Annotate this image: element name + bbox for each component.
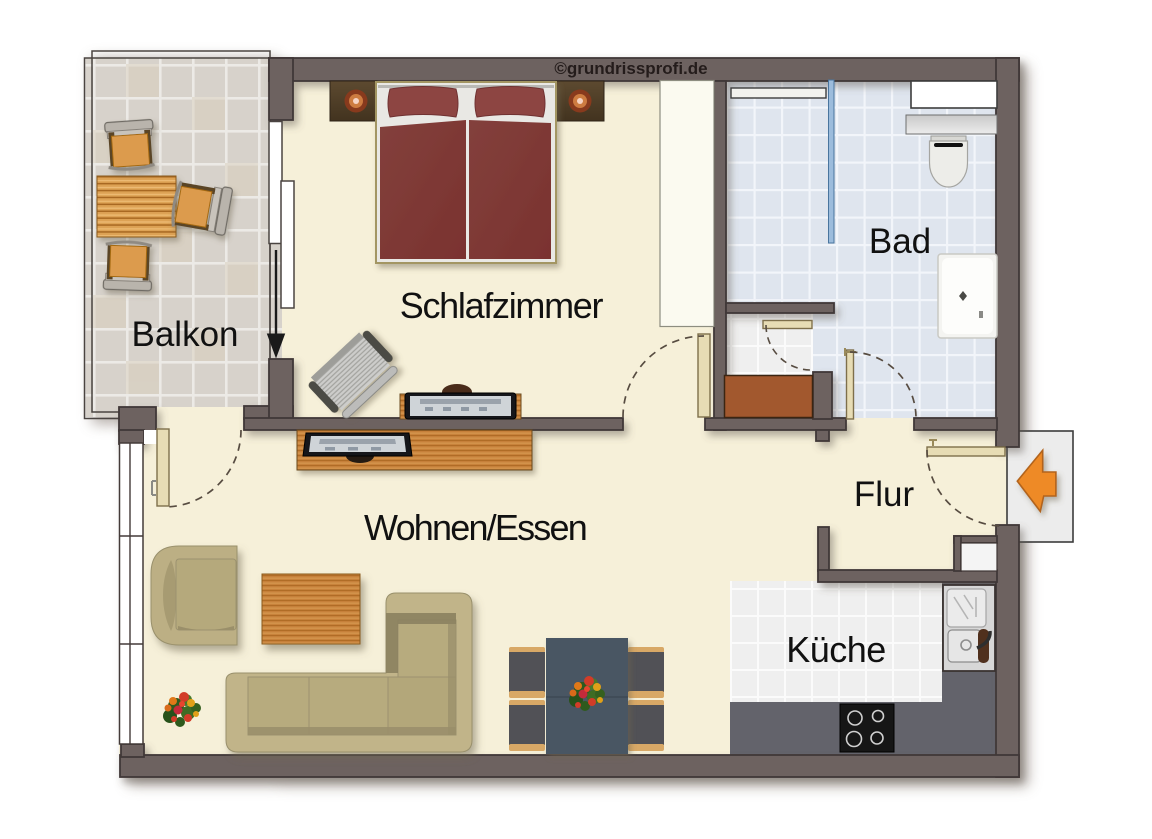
svg-text:Schlafzimmer: Schlafzimmer [400, 285, 604, 326]
svg-text:Wohnen/Essen: Wohnen/Essen [364, 507, 586, 548]
svg-text:©grundrissprofi.de: ©grundrissprofi.de [554, 59, 707, 78]
svg-text:Balkon: Balkon [131, 315, 238, 354]
svg-text:Flur: Flur [854, 475, 915, 514]
svg-text:Küche: Küche [786, 629, 886, 670]
svg-text:Bad: Bad [869, 222, 931, 261]
